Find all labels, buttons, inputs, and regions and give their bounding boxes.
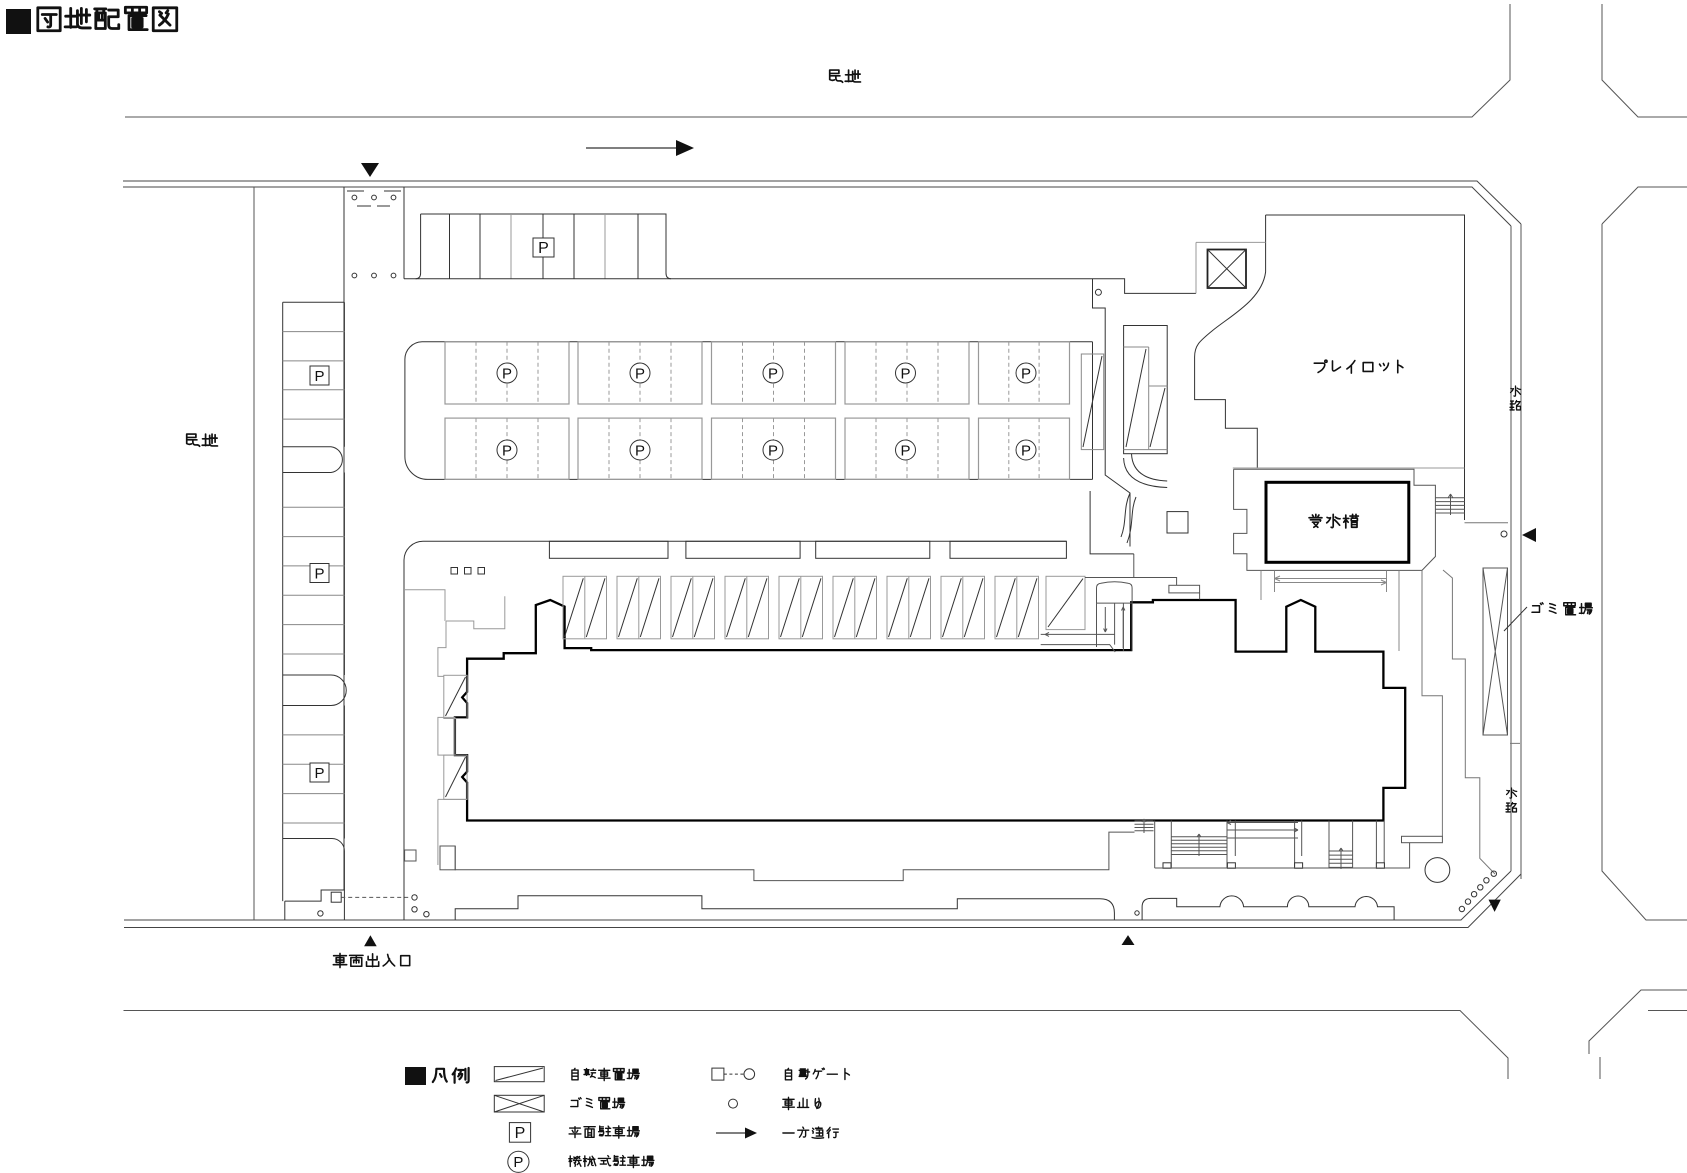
- svg-text:P: P: [502, 366, 512, 383]
- svg-text:P: P: [314, 368, 324, 385]
- svg-text:P: P: [515, 1125, 526, 1142]
- svg-text:P: P: [635, 366, 645, 383]
- svg-text:P: P: [314, 566, 324, 583]
- svg-text:P: P: [900, 366, 910, 383]
- svg-text:P: P: [1021, 366, 1031, 383]
- svg-text:P: P: [502, 443, 512, 460]
- svg-text:P: P: [768, 443, 778, 460]
- svg-text:P: P: [538, 240, 549, 257]
- svg-text:P: P: [513, 1154, 523, 1171]
- svg-text:P: P: [1021, 443, 1031, 460]
- svg-text:P: P: [314, 765, 324, 782]
- svg-text:P: P: [635, 443, 645, 460]
- svg-text:P: P: [900, 443, 910, 460]
- svg-text:P: P: [768, 366, 778, 383]
